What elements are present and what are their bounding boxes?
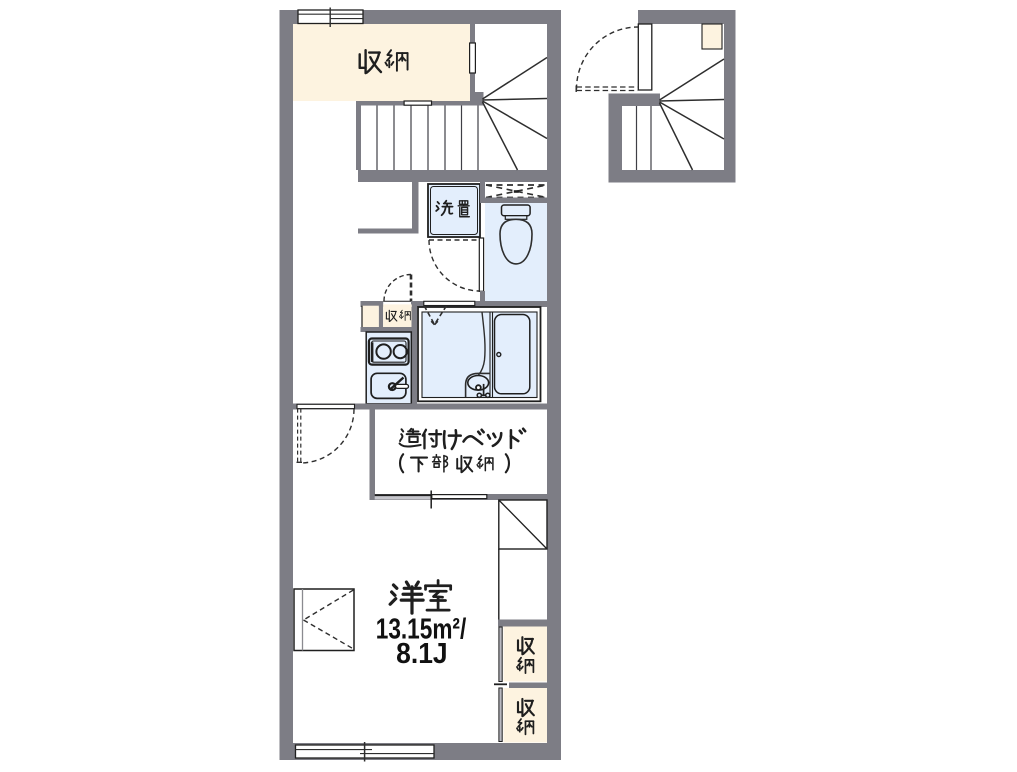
svg-text:8.1J: 8.1J bbox=[396, 638, 448, 670]
